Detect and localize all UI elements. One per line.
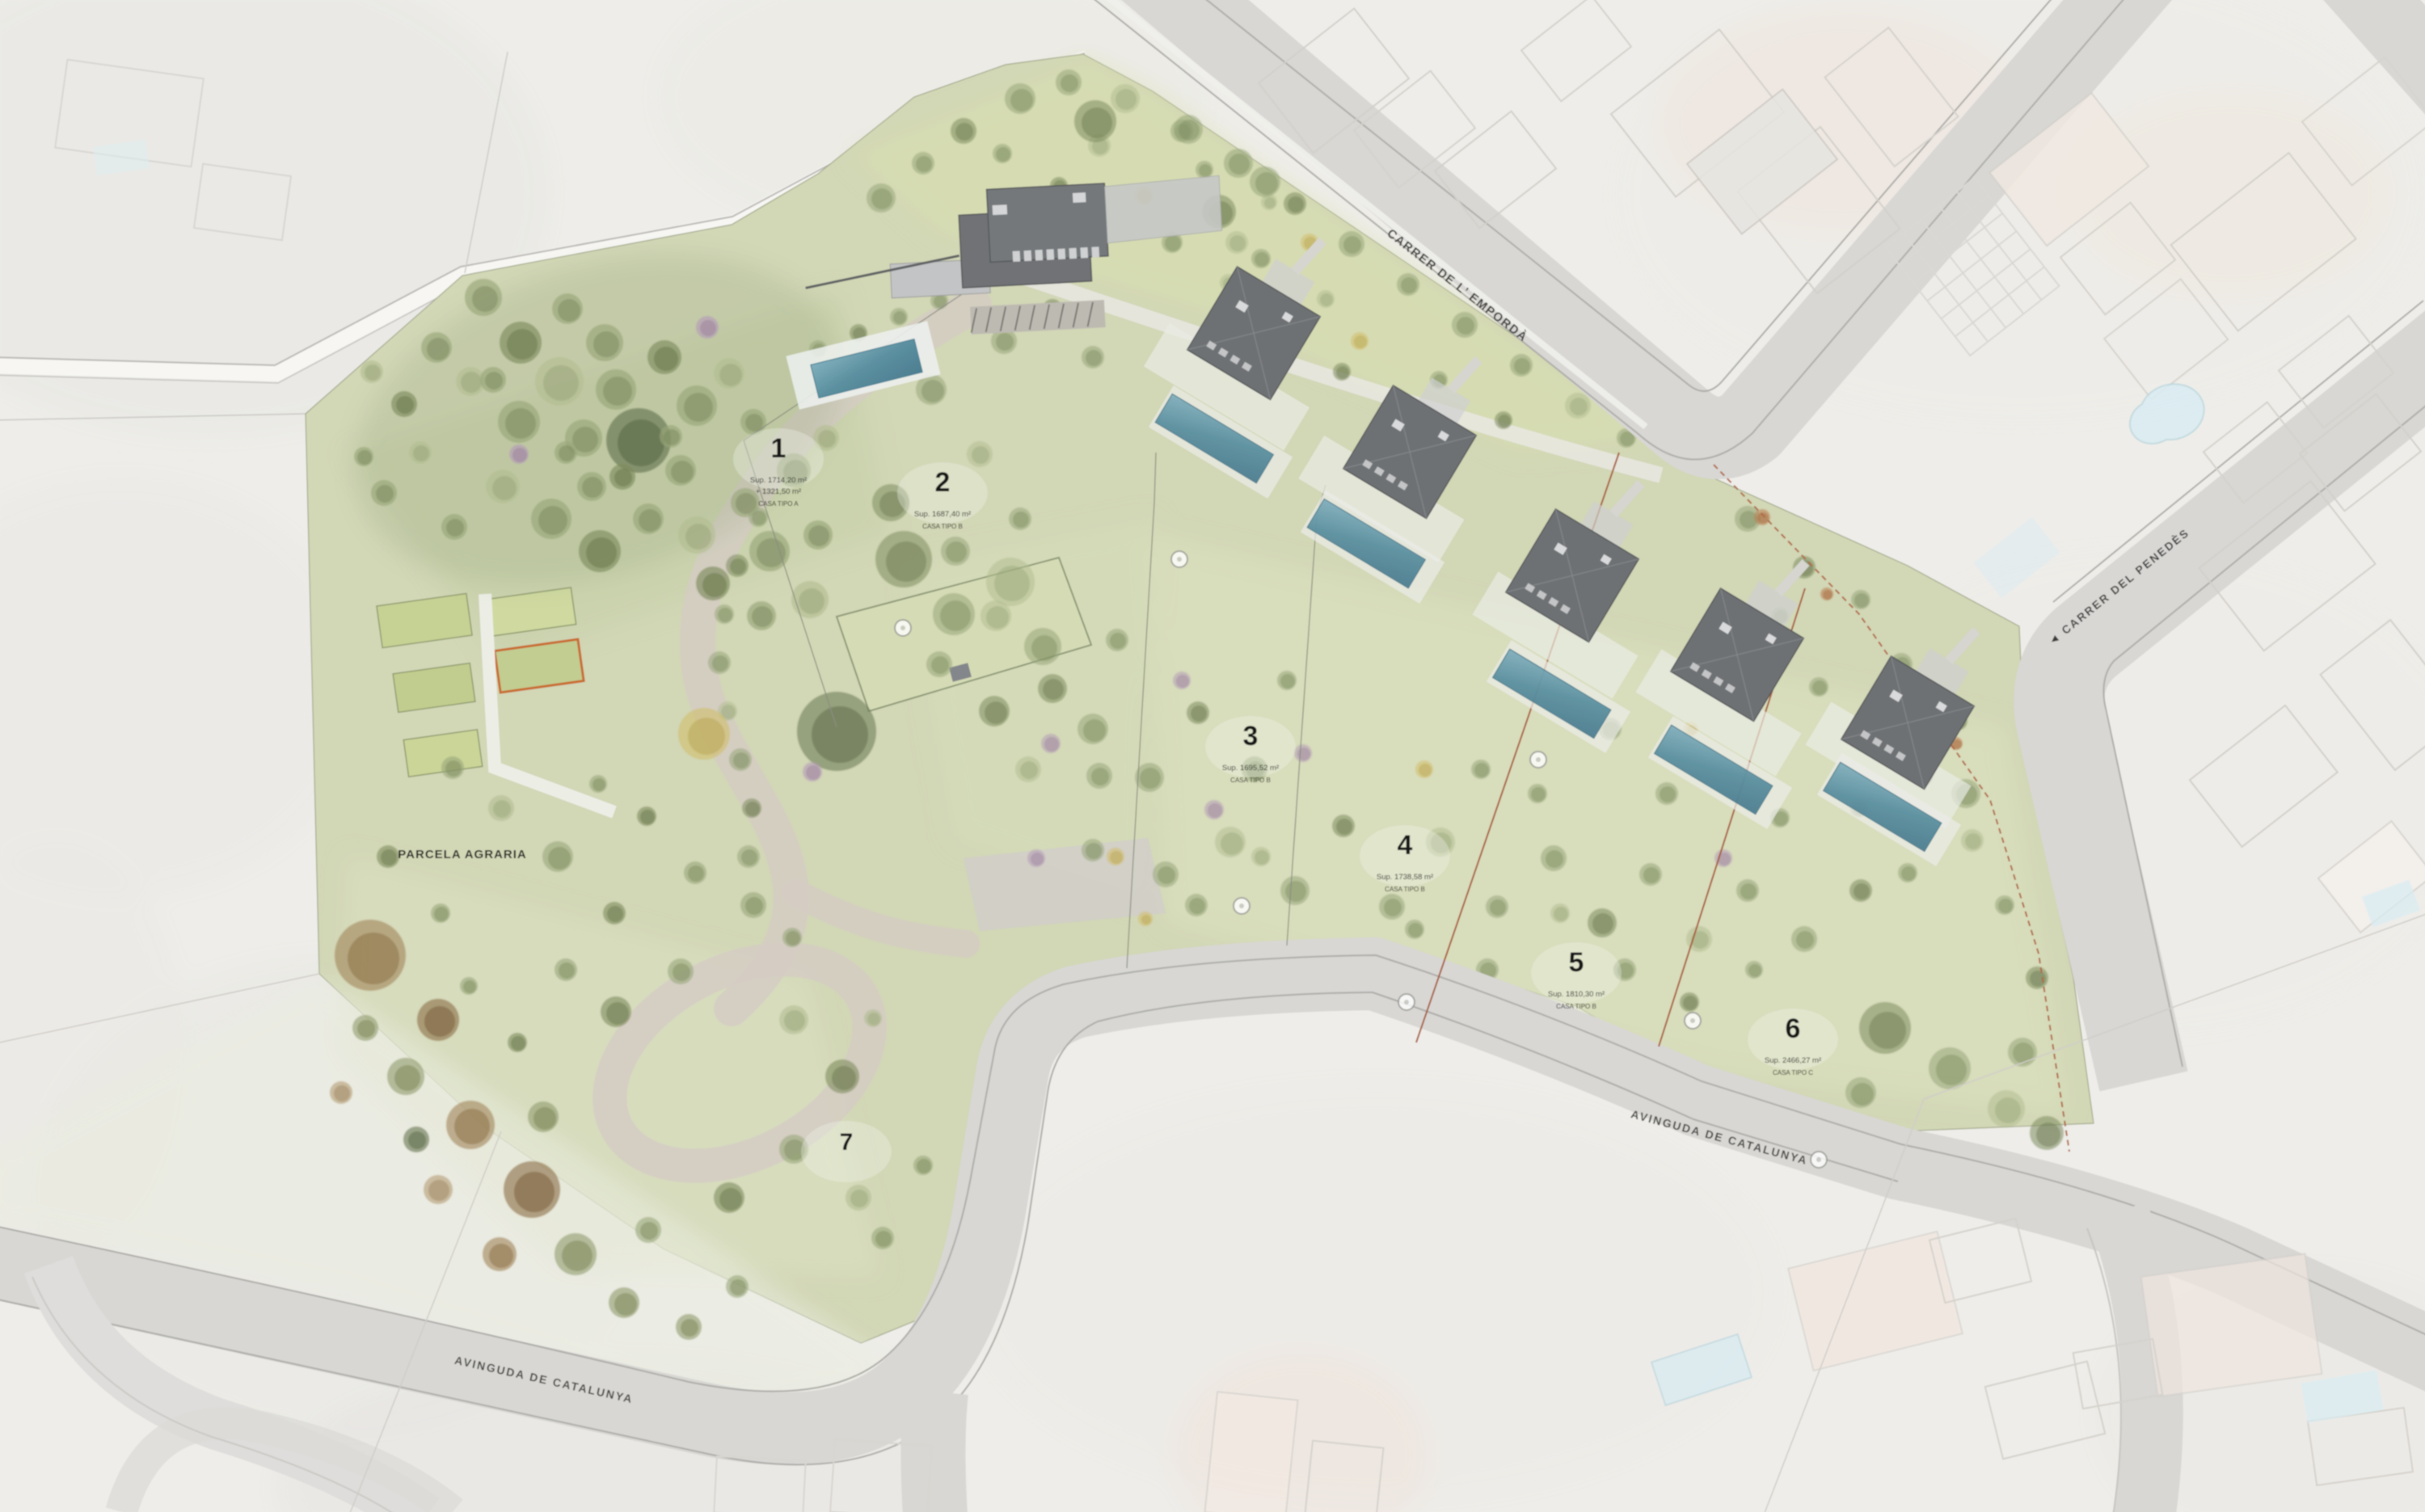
svg-text:CASA TIPO B: CASA TIPO B (1230, 777, 1271, 784)
svg-text:Sup. 2466,27 m²: Sup. 2466,27 m² (1765, 1056, 1821, 1065)
svg-text:+ 1321,50 m²: + 1321,50 m² (756, 487, 801, 496)
svg-text:CASA TIPO B: CASA TIPO B (922, 523, 963, 530)
svg-text:4: 4 (1398, 830, 1413, 861)
svg-text:6: 6 (1786, 1013, 1801, 1044)
svg-text:CASA TIPO B: CASA TIPO B (1556, 1003, 1596, 1010)
svg-text:Sup. 1738,58 m²: Sup. 1738,58 m² (1377, 873, 1433, 882)
svg-text:PARCELA AGRARIA: PARCELA AGRARIA (398, 848, 526, 861)
svg-text:CASA TIPO C: CASA TIPO C (1773, 1069, 1813, 1076)
svg-text:CASA TIPO A: CASA TIPO A (758, 500, 799, 508)
svg-text:Sup. 1695,52 m²: Sup. 1695,52 m² (1222, 764, 1279, 773)
svg-text:5: 5 (1569, 947, 1584, 978)
svg-text:CASA TIPO B: CASA TIPO B (1385, 886, 1425, 893)
svg-text:3: 3 (1243, 721, 1259, 752)
svg-text:Sup. 1714,20 m²: Sup. 1714,20 m² (750, 476, 807, 485)
svg-text:2: 2 (935, 467, 951, 498)
svg-text:Sup. 1687,40 m²: Sup. 1687,40 m² (914, 510, 971, 519)
svg-text:Sup. 1810,30 m²: Sup. 1810,30 m² (1548, 990, 1605, 999)
svg-text:1: 1 (771, 433, 787, 464)
svg-text:7: 7 (840, 1129, 854, 1156)
